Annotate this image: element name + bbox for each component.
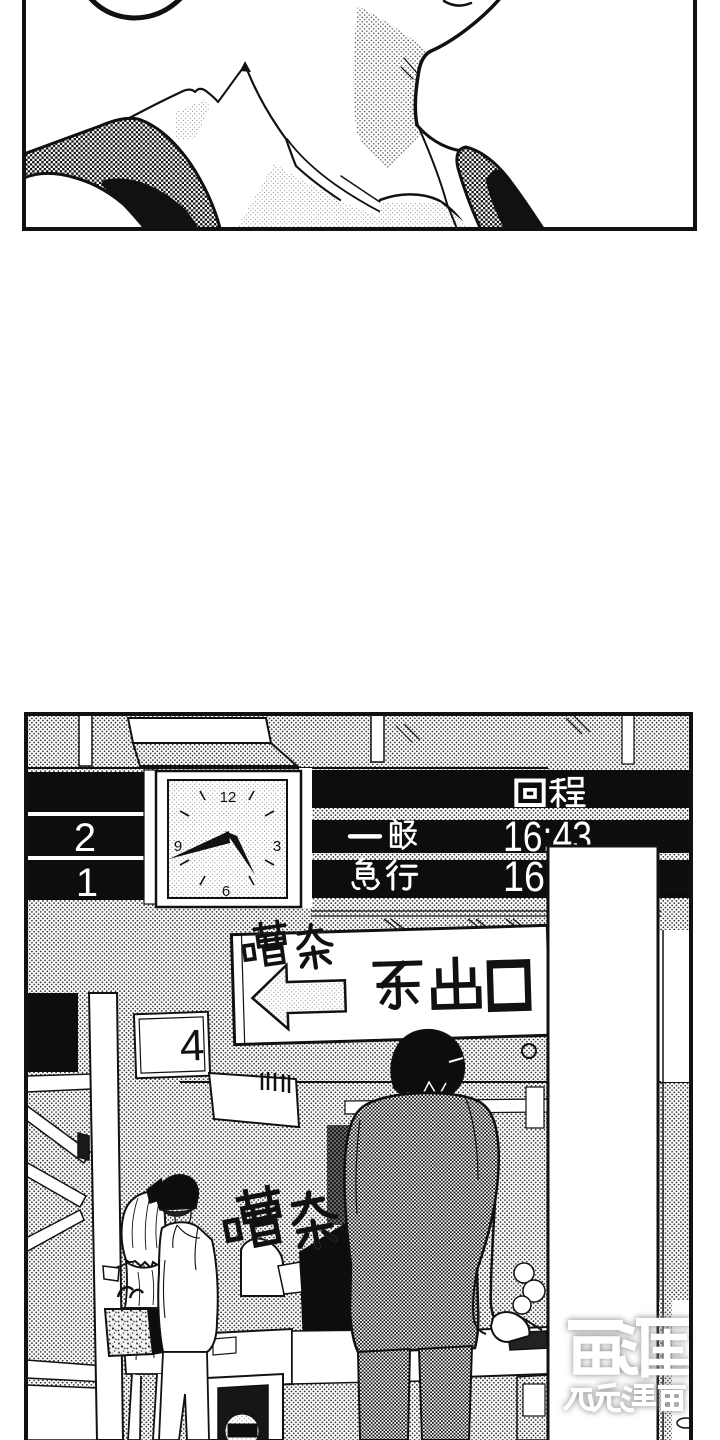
svg-text:9: 9 [174, 838, 182, 855]
svg-text:4: 4 [179, 1021, 205, 1071]
svg-text:6: 6 [222, 883, 230, 900]
svg-text:1: 1 [76, 861, 98, 905]
svg-text:2: 2 [74, 816, 96, 860]
svg-text:16: 16 [503, 853, 545, 901]
svg-text:3: 3 [273, 838, 281, 855]
svg-text:12: 12 [220, 789, 237, 806]
